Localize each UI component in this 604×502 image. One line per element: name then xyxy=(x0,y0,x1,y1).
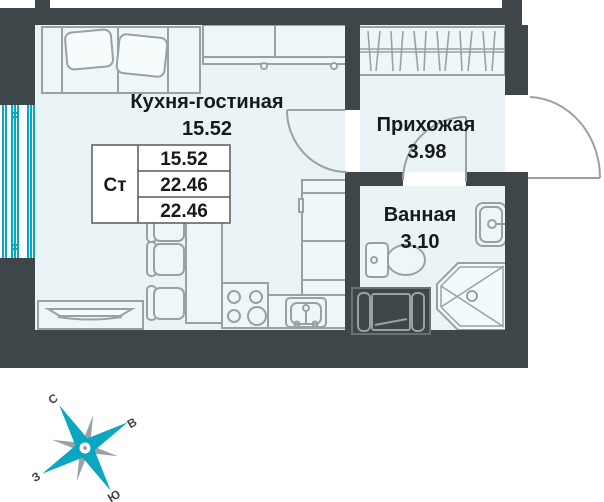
compass-south-label: Ю xyxy=(105,487,123,502)
hallway-wardrobe xyxy=(358,27,505,75)
floor-plan-svg: Ст 15.52 22.46 22.46 Кухня-гостиная 15.5… xyxy=(0,0,604,502)
room-area-hallway: 3.98 xyxy=(408,141,447,163)
washing-machine xyxy=(352,288,430,334)
chair xyxy=(147,242,184,276)
compass-east-label: В xyxy=(125,415,140,432)
fridge-cabinet-column xyxy=(299,180,347,295)
stove xyxy=(222,283,268,328)
sofa-pillow xyxy=(116,34,168,78)
apartment-type-label: Ст xyxy=(103,175,126,196)
room-label-kitchen-living: Кухня-гостиная xyxy=(130,91,283,113)
wardrobe-closet xyxy=(203,25,347,69)
floor-plan-page: Ст 15.52 22.46 22.46 Кухня-гостиная 15.5… xyxy=(0,0,604,502)
sofa-armrest-left xyxy=(42,27,62,93)
wall-top xyxy=(0,8,522,25)
sofa xyxy=(42,27,200,93)
living-area-value: 15.52 xyxy=(160,149,208,170)
wardrobe-handle xyxy=(331,63,337,69)
apartment-area-value: 22.46 xyxy=(160,175,208,196)
shower-drain-icon xyxy=(467,291,477,301)
wall-left-upper xyxy=(0,25,35,105)
wall-bottom xyxy=(0,330,528,368)
room-area-kitchen-living: 15.52 xyxy=(182,118,232,140)
sofa-pillow xyxy=(65,29,114,70)
chair xyxy=(147,286,184,320)
door-entrance xyxy=(528,97,600,178)
wall-right-lower xyxy=(505,177,528,330)
wall-bathroom-top-left xyxy=(345,172,403,186)
compass-north-label: С xyxy=(46,391,61,408)
compass-west-label: З xyxy=(29,469,43,485)
faucet-icon xyxy=(488,220,496,228)
room-label-bathroom: Ванная xyxy=(384,204,457,226)
compass-rose: С В З Ю xyxy=(16,379,153,502)
sofa-armrest-right xyxy=(168,27,200,93)
shower-cabin xyxy=(437,263,507,330)
room-label-hallway: Прихожая xyxy=(377,114,476,136)
room-area-bathroom: 3.10 xyxy=(401,231,440,253)
wardrobe-handle xyxy=(261,63,267,69)
tv xyxy=(48,309,132,316)
tv-stand xyxy=(38,301,143,329)
area-summary-table: Ст 15.52 22.46 22.46 xyxy=(92,145,230,223)
wall-bathroom-top-right xyxy=(466,172,528,186)
door-swing-arc xyxy=(530,97,600,178)
wall-right-upper xyxy=(505,25,528,95)
bathroom-sink xyxy=(476,203,506,246)
total-area-value: 22.46 xyxy=(160,201,208,222)
kitchen-sink-counter xyxy=(268,295,347,328)
chairs xyxy=(147,208,184,320)
wall-kitchen-hallway xyxy=(345,25,360,110)
fridge-handle xyxy=(299,199,303,212)
